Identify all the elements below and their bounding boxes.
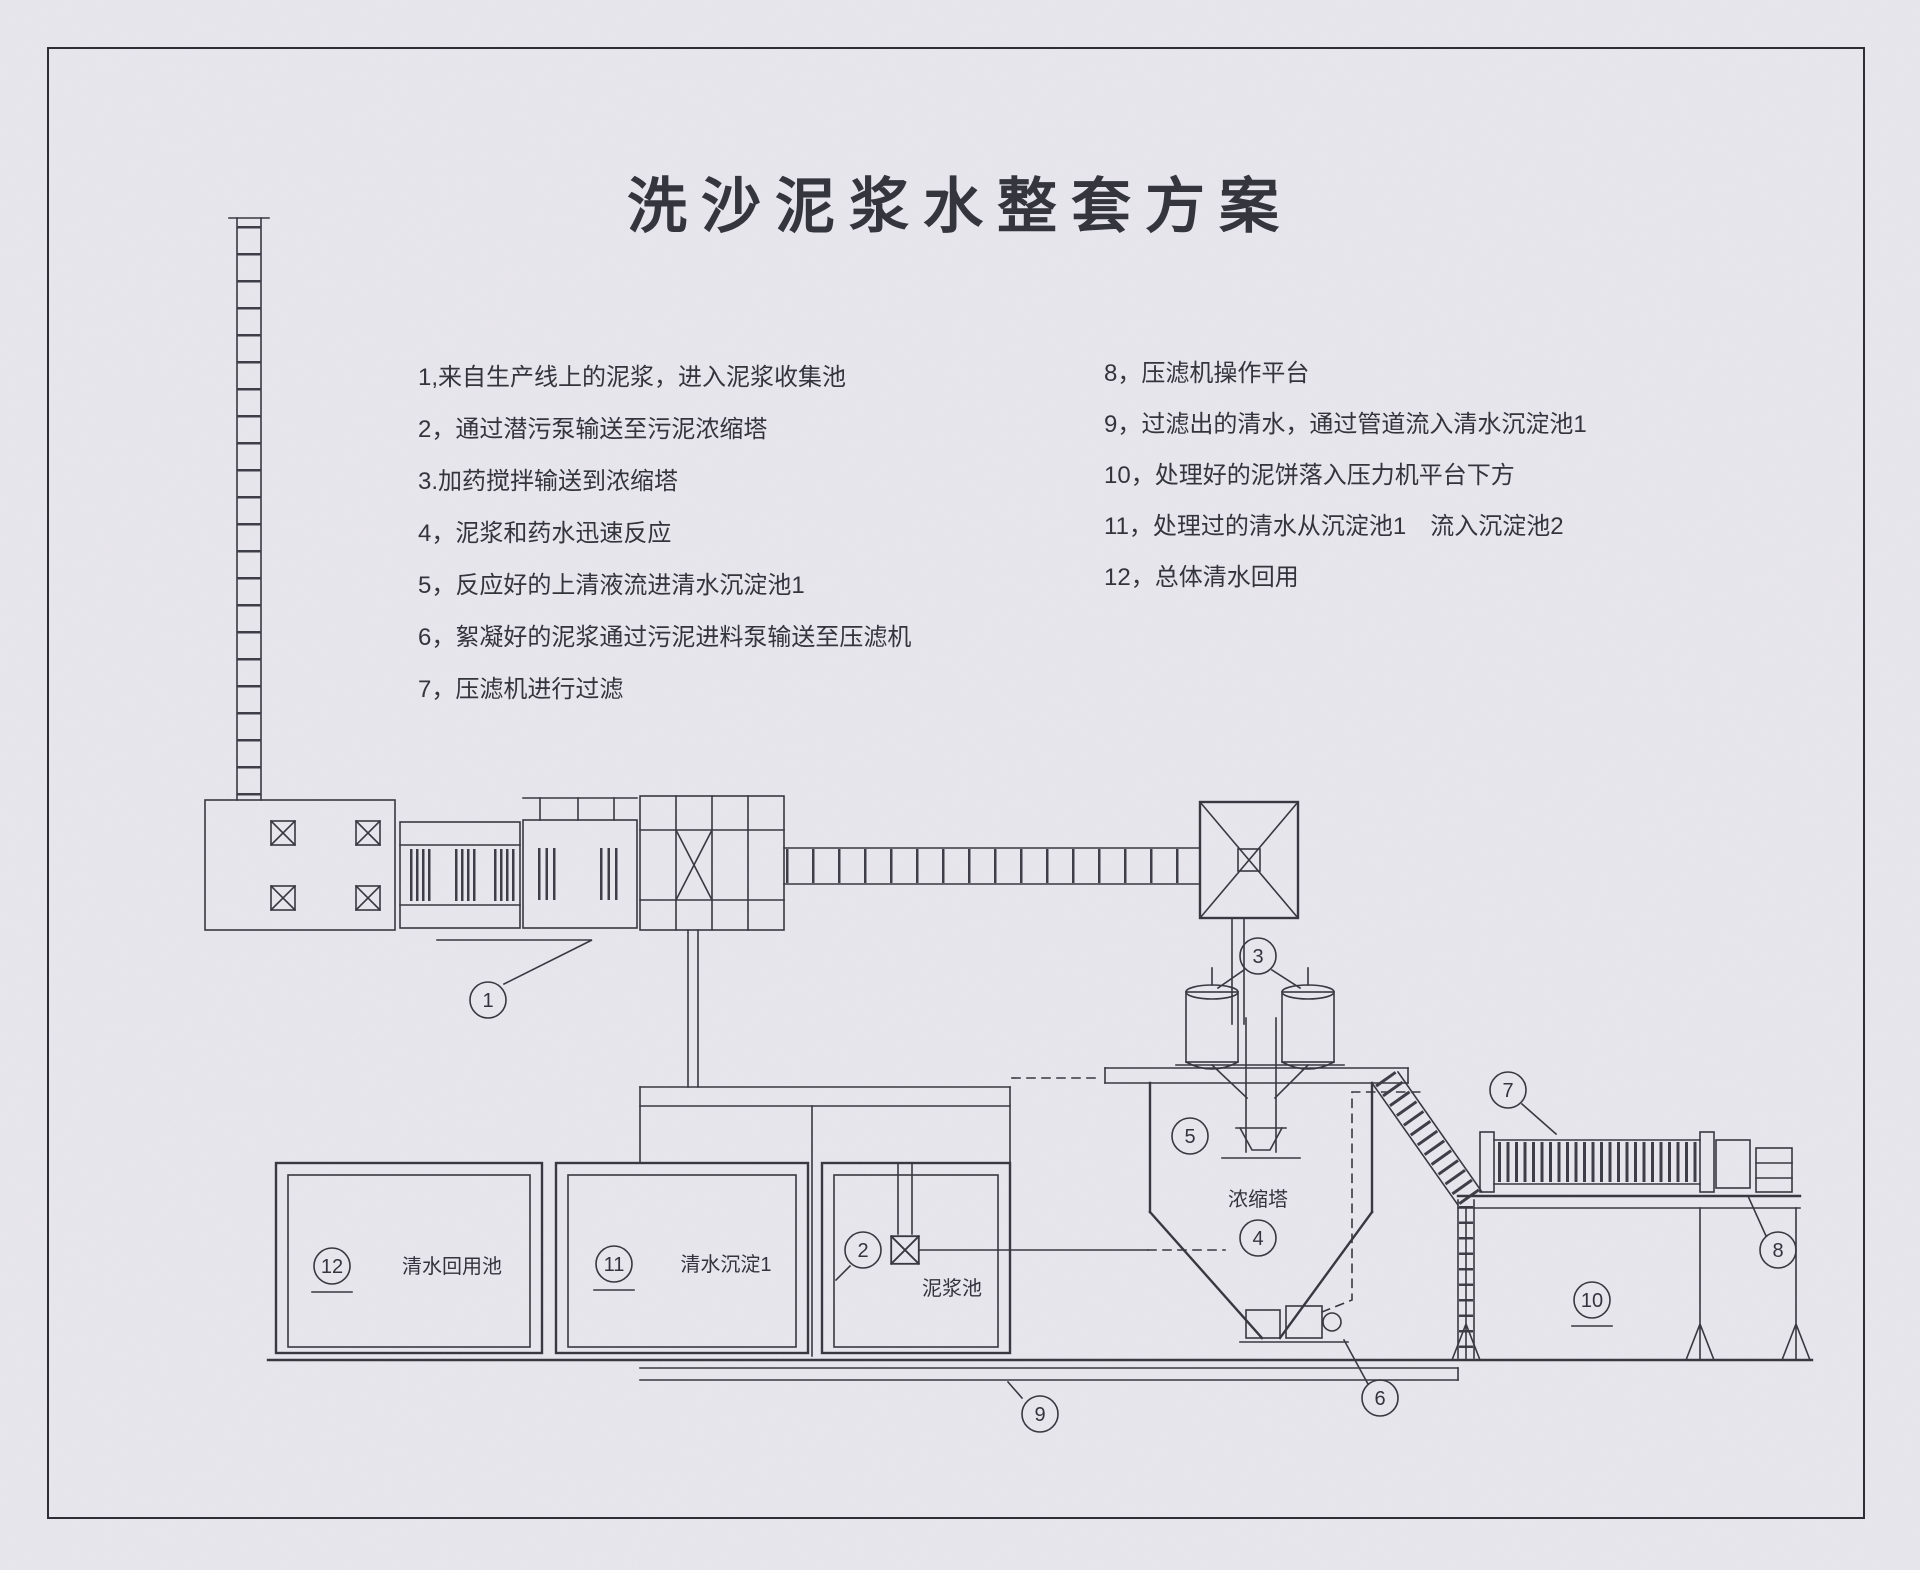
drawing-title: 洗沙泥浆水整套方案 (0, 158, 1920, 245)
note-line-2: 2，通过潜污泵输送至污泥浓缩塔 (418, 404, 911, 456)
note-line-4: 4，泥浆和药水迅速反应 (418, 508, 911, 560)
note-line-6: 6，絮凝好的泥浆通过污泥进料泵输送至压滤机 (418, 612, 911, 664)
note-line-12: 12，总体清水回用 (1104, 552, 1587, 603)
notes-right-column: 8，压滤机操作平台 9，过滤出的清水，通过管道流入清水沉淀池1 10，处理好的泥… (1104, 348, 1587, 603)
note-line-10: 10，处理好的泥饼落入压力机平台下方 (1104, 450, 1587, 501)
notes-left-column: 1,来自生产线上的泥浆，进入泥浆收集池 2，通过潜污泵输送至污泥浓缩塔 3.加药… (418, 352, 911, 716)
note-line-5: 5，反应好的上清液流进清水沉淀池1 (418, 560, 911, 612)
note-line-8: 8，压滤机操作平台 (1104, 348, 1587, 399)
note-line-7: 7，压滤机进行过滤 (418, 664, 911, 716)
note-line-9: 9，过滤出的清水，通过管道流入清水沉淀池1 (1104, 399, 1587, 450)
note-line-1: 1,来自生产线上的泥浆，进入泥浆收集池 (418, 352, 911, 404)
note-line-11: 11，处理过的清水从沉淀池1 流入沉淀池2 (1104, 501, 1587, 552)
note-line-3: 3.加药搅拌输送到浓缩塔 (418, 456, 911, 508)
